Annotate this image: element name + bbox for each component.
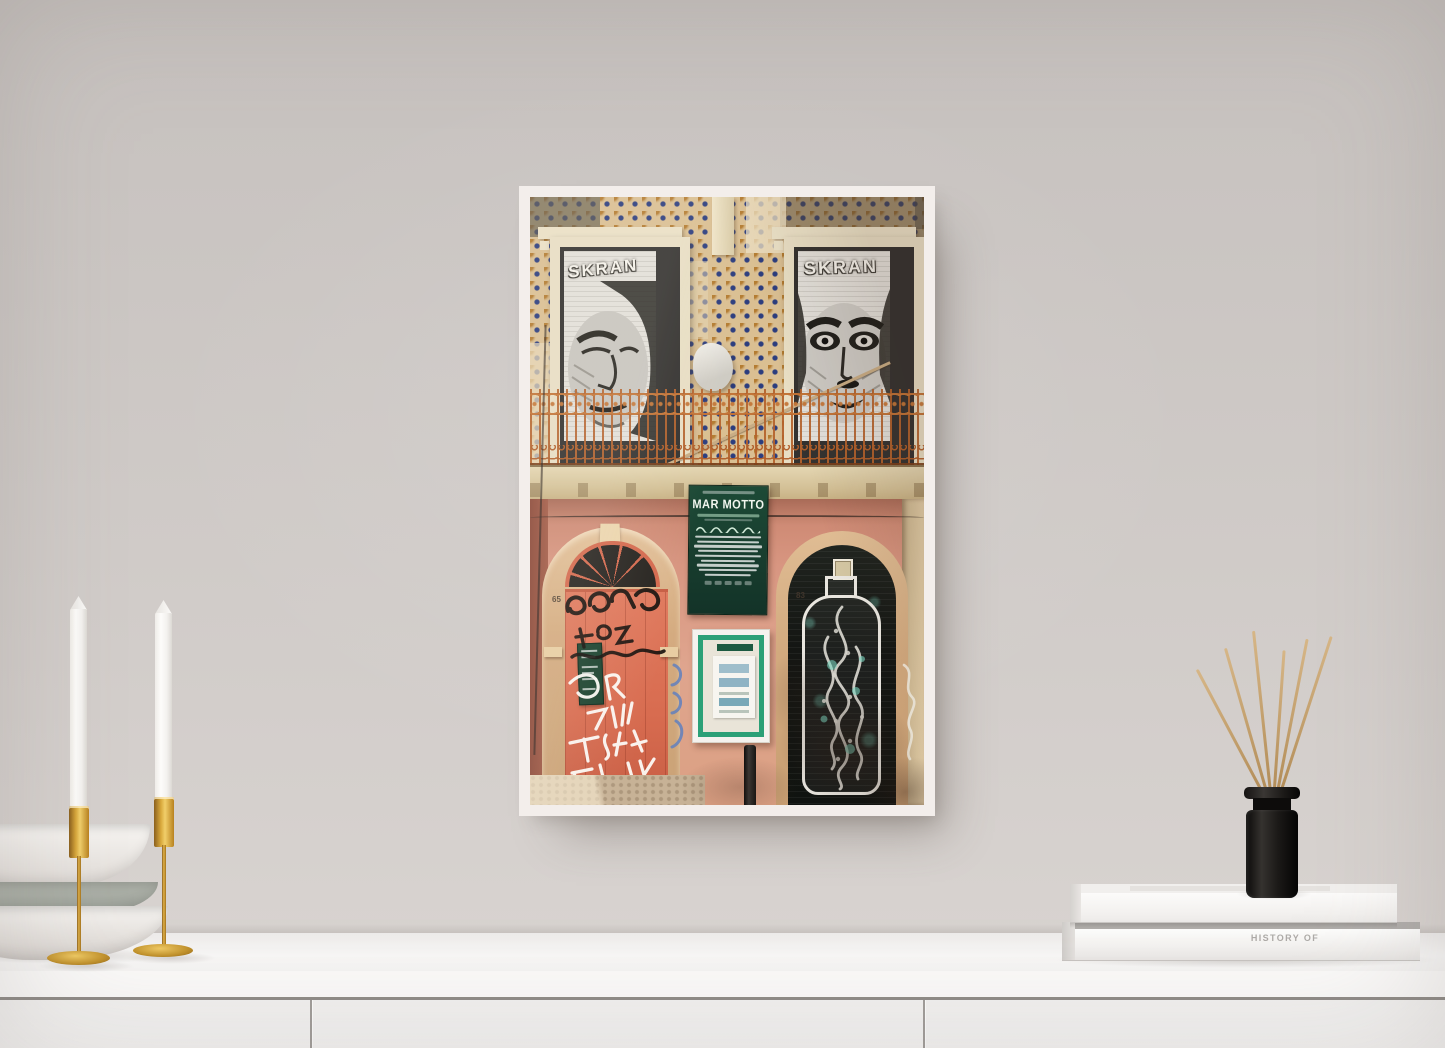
bottle-mural-neck [825,576,857,596]
sign-lineup-line [695,555,761,558]
door-number-right: 83 [796,591,805,600]
graffiti-text-skran-left: SKRAN [568,255,639,282]
paper-thumbnail [719,678,749,687]
sign-title: MAR MOTTO [692,497,764,512]
book-top [1070,893,1397,923]
candle [155,613,172,799]
sign-lineup-line [697,540,759,543]
sign-lineup-line [701,559,756,562]
candle-holder-cup [154,797,174,847]
candle-holder-base [133,944,193,957]
balcony-railing [530,389,924,469]
drawer-seam [923,1000,925,1048]
book-top-pages [1070,884,1081,922]
display-case-paper [713,656,755,718]
foliage-shadow [680,757,800,805]
book-spine-title: HISTORY OF [1205,933,1365,943]
paper-thumbnail [719,698,749,706]
blue-graffiti [668,659,690,755]
mar-motto-sign: MAR MOTTO [687,485,768,616]
sponsor-logo [724,581,731,585]
black-graffiti [560,585,672,673]
graffiti-text-skran-right: SKRAN [804,256,879,280]
display-case-green-mat [698,635,764,737]
sponsor-logo [734,581,741,585]
poster-frame: SKRAN SKRAN [519,186,935,816]
foliage-shadow [766,649,836,739]
sign-header-line [703,491,755,494]
sunlight-patch [530,775,705,805]
sign-lineup-line [704,574,751,577]
sign-lineup-line [694,545,763,548]
white-graffiti [562,665,674,789]
sign-lineup-line [699,569,757,572]
sign-lineup-line [695,535,761,538]
diffuser-bottle [1246,810,1298,898]
plastic-bag [693,343,733,391]
sideboard-drawers [0,1000,1445,1048]
sign-subtitle-line [704,519,752,522]
candle [70,609,87,807]
sponsor-logo [744,581,751,585]
sideboard-counter-edge [0,971,1445,1000]
sign-sponsor-row [704,581,751,585]
display-case-header [717,644,753,651]
sponsor-logo [714,581,721,585]
sign-subtitle-line [697,513,759,517]
sign-lineup-line [698,550,759,553]
candle-holder-base [47,951,110,965]
candle-holder-cup [69,806,89,858]
candle-holder-stem [77,856,81,958]
wave-ornament [696,525,760,534]
paper-thumbnail [719,664,749,673]
sponsor-logo [704,581,711,585]
paper-line [719,692,749,695]
candle-holder-stem [162,845,166,947]
shadow-patch [780,197,924,229]
sign-lineup-line [697,564,759,567]
notice-display-case [692,629,770,743]
poster-photo: SKRAN SKRAN [530,197,924,805]
paper-line [719,710,749,713]
drawer-seam [310,1000,312,1048]
drain-pipe [712,197,734,255]
